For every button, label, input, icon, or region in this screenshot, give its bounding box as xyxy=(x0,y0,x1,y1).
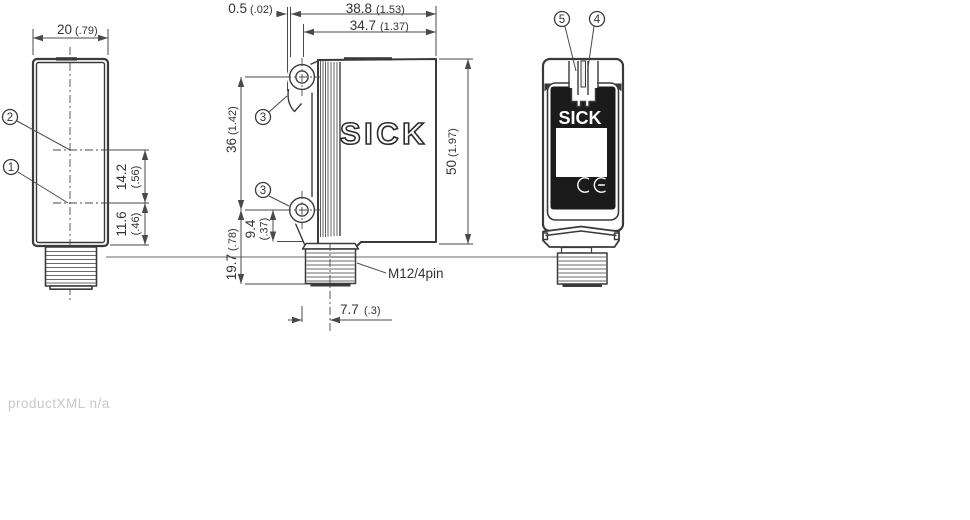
dim-front-width-in: (.79) xyxy=(75,25,98,37)
top-cap-strip xyxy=(56,57,77,60)
dim-front-width: 20 (.79) xyxy=(33,22,108,55)
callout-5-number: 5 xyxy=(559,14,565,26)
m12-connector-main xyxy=(303,243,359,331)
dim-depth-body: 34.7 (1.37) xyxy=(304,18,437,57)
dim-front-width-mm: 20 xyxy=(57,22,72,37)
dim-axis-lower-mm: 11.6 xyxy=(114,211,129,236)
dim-height-in: (1.97) xyxy=(447,128,459,157)
callout-3-bottom: 3 xyxy=(256,183,290,207)
callout-3-top-number: 3 xyxy=(260,112,266,124)
dim-face-offset-in: (.02) xyxy=(250,4,273,16)
top-cap-strip xyxy=(344,57,392,60)
dim-hole-span-in: (1.42) xyxy=(227,106,239,135)
housing-body xyxy=(33,59,108,246)
dim-hole-to-base-mm: 9.4 xyxy=(243,219,258,238)
technical-drawing: 20 (.79) 14.2 (.56) 11.6 (.46) xyxy=(0,0,970,520)
mounting-lug-top xyxy=(288,89,301,112)
sick-logo-front: SICK xyxy=(559,108,604,128)
dim-height: 50 (1.97) xyxy=(439,59,473,244)
sensor-housing xyxy=(318,59,436,246)
dim-axis-offsets: 14.2 (.56) 11.6 (.46) xyxy=(104,150,149,245)
connector-label: M12/4pin xyxy=(357,263,444,281)
dim-connector-offset-mm: 7.7 xyxy=(340,302,359,317)
dimensional-drawing-page: 20 (.79) 14.2 (.56) 11.6 (.46) xyxy=(0,0,970,520)
dim-connector-offset-in: (.3) xyxy=(364,305,381,317)
dim-axis-upper-in: (.56) xyxy=(130,166,142,189)
mounting-lug-bottom xyxy=(296,224,306,246)
main-side-view: 0.5 (.02) 38.8 (1.53) 34.7 (1.37) 36 (1.… xyxy=(224,1,473,331)
dim-depth-body-mm: 34.7 xyxy=(350,18,376,33)
dim-depth-total-mm: 38.8 xyxy=(346,1,372,16)
sick-logo-side: SICK xyxy=(340,116,426,151)
dim-axis-upper-mm: 14.2 xyxy=(114,164,129,190)
dim-connector-offset: 7.7 (.3) xyxy=(288,302,392,322)
m12-connector-left xyxy=(46,247,97,289)
optical-window xyxy=(556,128,607,177)
dim-face-offset-mm: 0.5 xyxy=(228,1,247,16)
callout-2-number: 2 xyxy=(7,112,13,124)
left-side-view: 20 (.79) 14.2 (.56) 11.6 (.46) xyxy=(3,22,150,302)
dim-hole-to-tip-mm: 19.7 xyxy=(224,254,239,280)
dim-hole-to-base-in: (.37) xyxy=(259,218,271,241)
dim-depth-body-in: (1.37) xyxy=(380,21,409,33)
dim-depth-total-in: (1.53) xyxy=(376,4,405,16)
callout-3-top: 3 xyxy=(256,96,288,125)
dim-hole-to-tip-in: (.78) xyxy=(227,228,239,251)
dim-hole-span-mm: 36 xyxy=(224,138,239,153)
footer-note: productXML n/a xyxy=(8,396,110,411)
callout-3-bottom-number: 3 xyxy=(260,185,266,197)
adjustment-slot xyxy=(569,61,598,107)
dim-height-mm: 50 xyxy=(444,160,459,175)
mounting-hole-bottom xyxy=(283,191,321,229)
dim-axis-lower-in: (.46) xyxy=(130,213,142,236)
connector-label-text: M12/4pin xyxy=(388,266,444,281)
callout-4-number: 4 xyxy=(594,14,601,26)
callout-1-number: 1 xyxy=(8,162,14,174)
